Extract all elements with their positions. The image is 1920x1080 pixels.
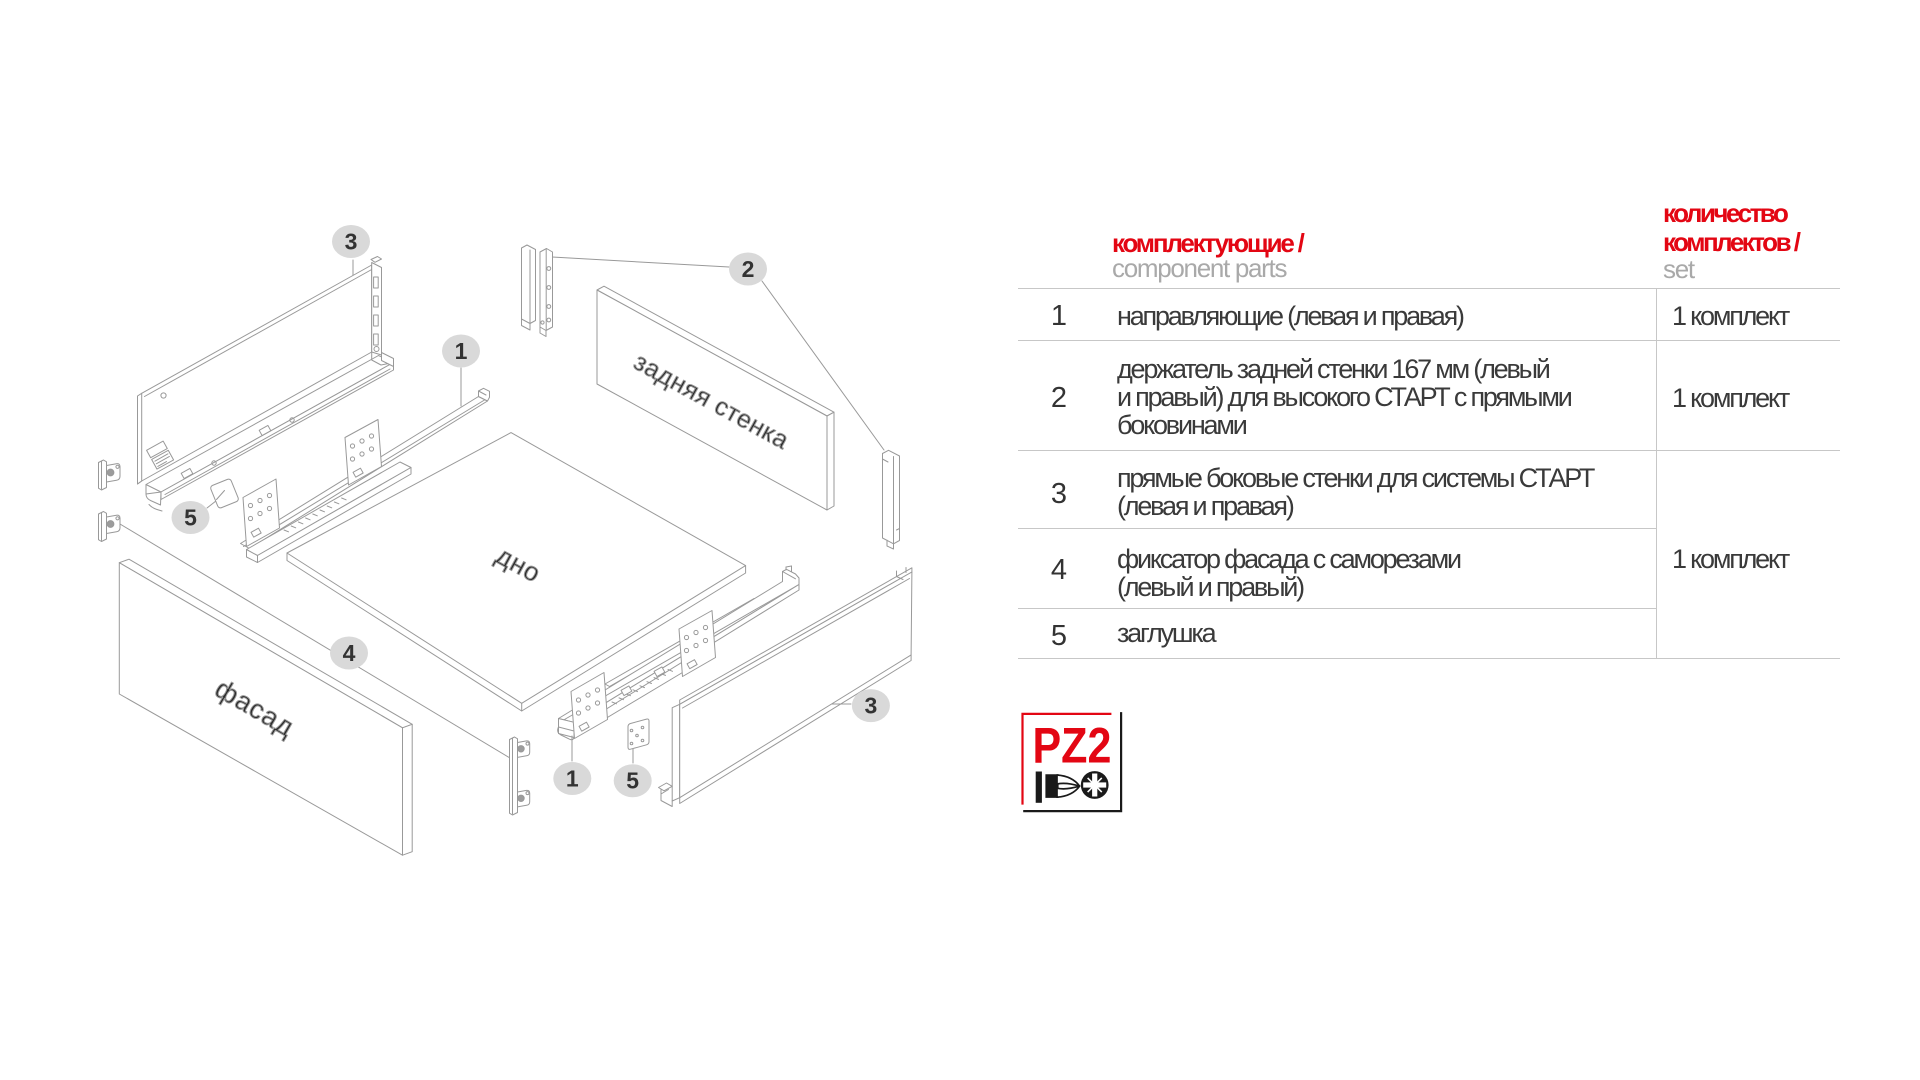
- svg-text:4: 4: [343, 640, 356, 666]
- svg-text:5: 5: [626, 768, 639, 794]
- svg-text:3: 3: [865, 693, 878, 719]
- svg-text:5: 5: [184, 505, 197, 531]
- svg-text:2: 2: [742, 256, 755, 282]
- svg-text:1: 1: [455, 338, 468, 364]
- svg-text:PZ2: PZ2: [1033, 717, 1112, 773]
- svg-text:3: 3: [345, 229, 358, 255]
- svg-text:1: 1: [566, 766, 579, 792]
